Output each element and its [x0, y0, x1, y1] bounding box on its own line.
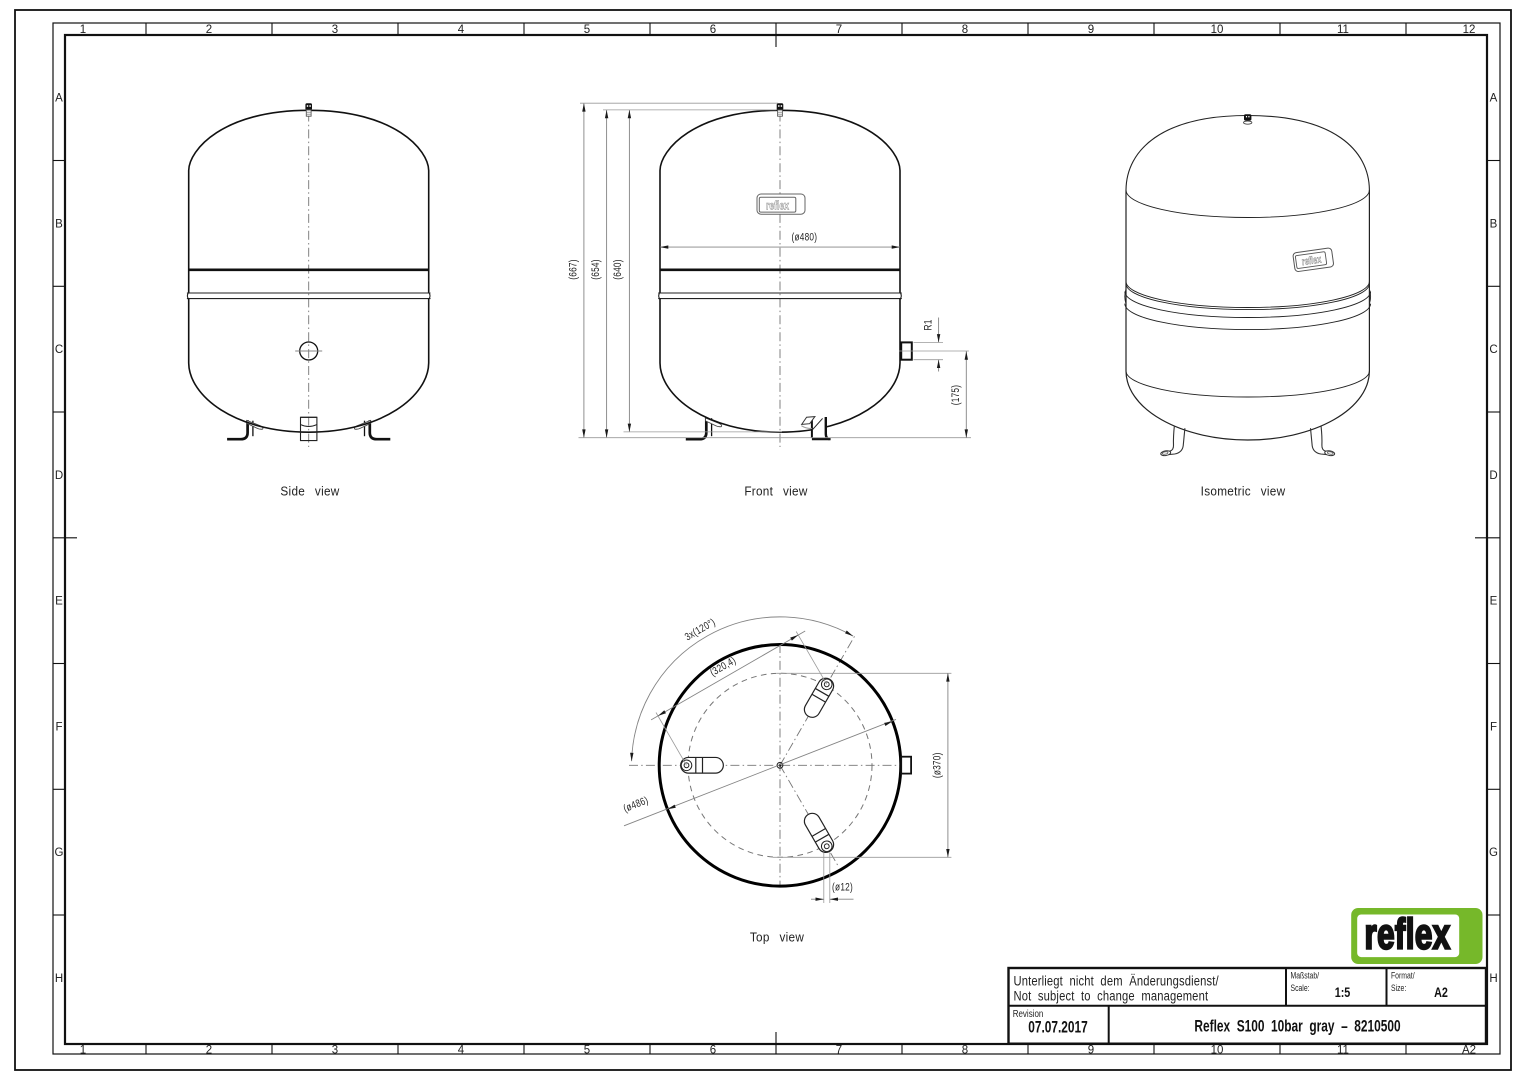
svg-text:(175): (175) — [950, 385, 962, 405]
svg-text:Front view: Front view — [744, 484, 807, 499]
svg-text:Top view: Top view — [750, 930, 804, 945]
svg-text:12: 12 — [1463, 24, 1476, 36]
svg-text:10: 10 — [1211, 24, 1224, 36]
svg-text:7: 7 — [836, 1045, 842, 1057]
svg-text:A2: A2 — [1434, 985, 1448, 1000]
svg-text:(ø480): (ø480) — [792, 232, 818, 244]
svg-text:E: E — [55, 596, 63, 608]
svg-text:Size:: Size: — [1391, 983, 1406, 993]
svg-text:Isometric view: Isometric view — [1201, 484, 1286, 499]
svg-text:Not subject to change mana: Not subject to change management — [1014, 989, 1209, 1004]
svg-text:(ø12): (ø12) — [832, 882, 853, 894]
svg-text:5: 5 — [584, 1045, 590, 1057]
svg-text:G: G — [1489, 847, 1498, 859]
svg-text:4: 4 — [458, 1045, 465, 1057]
svg-text:E: E — [1490, 596, 1498, 608]
svg-text:Maßstab/: Maßstab/ — [1291, 970, 1320, 980]
svg-text:A: A — [1490, 93, 1498, 105]
svg-text:G: G — [55, 847, 64, 859]
svg-text:8: 8 — [962, 1045, 968, 1057]
svg-text:4: 4 — [458, 24, 465, 36]
svg-text:Scale:: Scale: — [1291, 983, 1310, 993]
svg-text:3: 3 — [332, 24, 338, 36]
svg-text:A2: A2 — [1462, 1045, 1476, 1057]
svg-text:Side view: Side view — [280, 484, 339, 499]
svg-text:F: F — [55, 721, 62, 733]
svg-text:H: H — [55, 973, 63, 985]
svg-text:1:5: 1:5 — [1335, 985, 1351, 1000]
svg-text:11: 11 — [1337, 1045, 1349, 1057]
svg-text:(640): (640) — [612, 259, 624, 279]
svg-text:3: 3 — [332, 1045, 338, 1057]
svg-text:R1: R1 — [923, 319, 935, 330]
svg-text:C: C — [55, 344, 63, 356]
svg-text:10: 10 — [1211, 1045, 1224, 1057]
svg-text:2: 2 — [206, 24, 212, 36]
svg-text:A: A — [55, 93, 63, 105]
svg-text:6: 6 — [710, 24, 716, 36]
svg-text:C: C — [1489, 344, 1497, 356]
svg-text:B: B — [55, 218, 63, 230]
svg-text:11: 11 — [1337, 24, 1349, 36]
svg-text:Unterliegt nicht dem Änderu: Unterliegt nicht dem Änderungsdienst/ — [1014, 973, 1220, 988]
svg-text:1: 1 — [80, 24, 86, 36]
svg-text:7: 7 — [836, 24, 842, 36]
svg-text:1: 1 — [80, 1045, 86, 1057]
svg-text:2: 2 — [206, 1045, 212, 1057]
svg-text:8: 8 — [962, 24, 968, 36]
svg-text:B: B — [1490, 218, 1498, 230]
svg-text:(654): (654) — [590, 259, 602, 279]
svg-text:(667): (667) — [567, 259, 579, 279]
svg-text:F: F — [1490, 721, 1497, 733]
svg-text:6: 6 — [710, 1045, 716, 1057]
svg-text:5: 5 — [584, 24, 590, 36]
svg-text:reflex: reflex — [1365, 910, 1451, 958]
svg-text:Reflex S100 10bar gray –: Reflex S100 10bar gray – 8210500 — [1194, 1017, 1400, 1036]
svg-text:D: D — [1489, 470, 1497, 482]
svg-text:(ø370): (ø370) — [931, 752, 943, 778]
svg-text:D: D — [55, 470, 63, 482]
svg-text:9: 9 — [1088, 1045, 1094, 1057]
svg-text:Format/: Format/ — [1391, 970, 1415, 980]
svg-text:reflex: reflex — [766, 200, 789, 213]
svg-text:07.07.2017: 07.07.2017 — [1028, 1018, 1087, 1037]
svg-text:H: H — [1489, 973, 1497, 985]
svg-text:9: 9 — [1088, 24, 1094, 36]
